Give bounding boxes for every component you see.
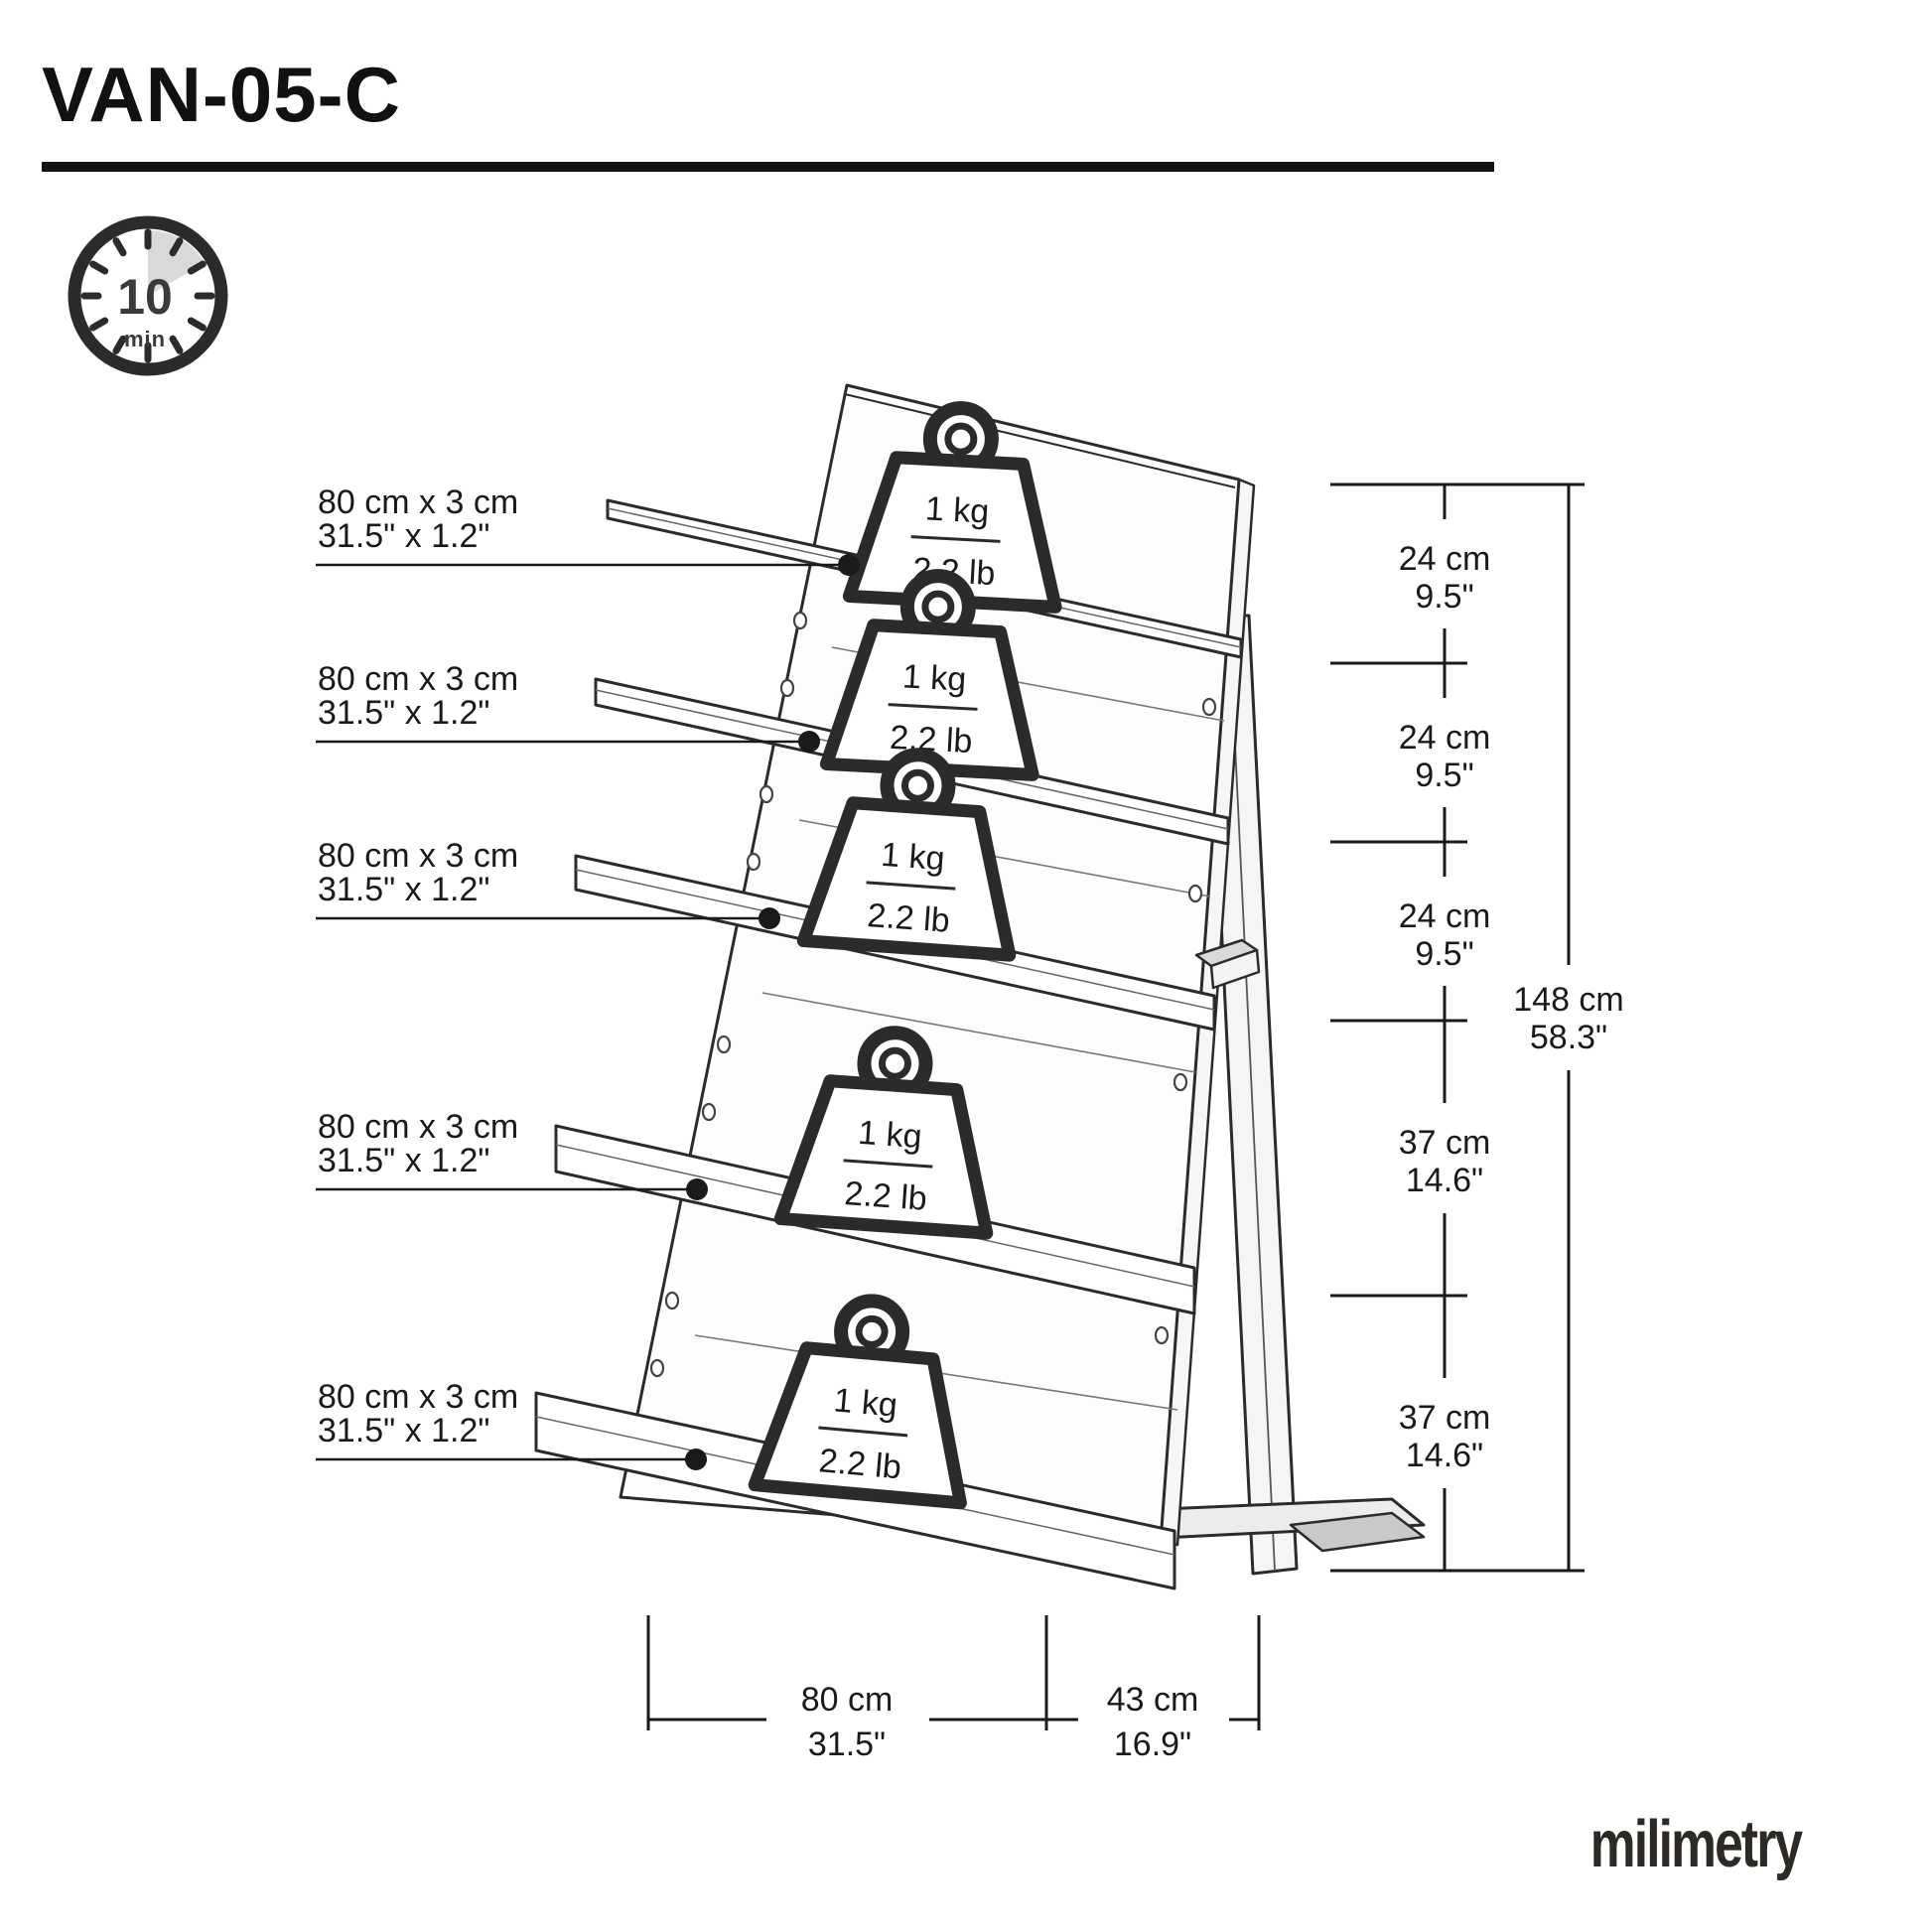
dim-segment-imperial: 9.5" (1415, 757, 1473, 794)
shelf-leader-dot (685, 1449, 707, 1470)
dim-segment-metric: 24 cm (1399, 540, 1491, 578)
weight-kg-label: 1 kg (901, 657, 967, 698)
shelf-size-label-imperial: 31.5" x 1.2" (318, 1412, 489, 1449)
shelf-size-label-metric: 80 cm x 3 cm (318, 837, 518, 875)
shelf-size-label-metric: 80 cm x 3 cm (318, 1108, 518, 1146)
dim-segment-metric: 37 cm (1399, 1399, 1491, 1437)
dim-width-metric: 80 cm (801, 1681, 894, 1719)
dim-segment-metric: 24 cm (1399, 897, 1491, 935)
shelf-size-label-imperial: 31.5" x 1.2" (318, 517, 489, 555)
time-unit: min (124, 327, 166, 351)
product-dimension-diagram: VAN-05-C 10 min (0, 0, 1932, 1932)
shelf-leader-dot (686, 1178, 708, 1200)
weight-lb-label: 2.2 lb (866, 897, 951, 940)
dim-depth-imperial: 16.9" (1114, 1725, 1191, 1763)
shelf-size-label-metric: 80 cm x 3 cm (318, 1378, 518, 1416)
dim-segment-imperial: 14.6" (1406, 1162, 1483, 1199)
weight-lb-label: 2.2 lb (817, 1442, 902, 1486)
shelf-leader-dot (798, 731, 820, 753)
title-underline (42, 162, 1494, 172)
weight-kg-label: 1 kg (924, 489, 990, 530)
dim-total-metric: 148 cm (1513, 981, 1624, 1019)
shelf-leader-dot (838, 554, 860, 576)
dim-segment-imperial: 14.6" (1406, 1437, 1483, 1474)
page-title: VAN-05-C (42, 51, 401, 138)
shelf-size-label-imperial: 31.5" x 1.2" (318, 1142, 489, 1179)
dim-segment-metric: 37 cm (1399, 1124, 1491, 1162)
dim-width-imperial: 31.5" (808, 1725, 886, 1763)
brand-logo: milimetry (1590, 1806, 1803, 1880)
shelf-leader-dot (759, 907, 780, 929)
dim-depth-metric: 43 cm (1107, 1681, 1199, 1719)
weight-kg-label: 1 kg (880, 836, 946, 878)
dim-segment-imperial: 9.5" (1415, 578, 1473, 616)
weight-lb-label: 2.2 lb (843, 1174, 928, 1218)
shelf-size-label-imperial: 31.5" x 1.2" (318, 694, 489, 732)
shelf-size-label-metric: 80 cm x 3 cm (318, 483, 518, 521)
shelf-size-callout: 80 cm x 3 cm 31.5" x 1.2" (316, 483, 860, 576)
weight-kg-label: 1 kg (832, 1381, 898, 1424)
weight-kg-label: 1 kg (857, 1114, 923, 1156)
assembly-time-clock-icon: 10 min (74, 222, 221, 369)
dim-segment-imperial: 9.5" (1415, 935, 1473, 973)
bottom-dimension-labels: 80 cm 31.5" 43 cm 16.9" (801, 1681, 1199, 1763)
shelf-size-label-metric: 80 cm x 3 cm (318, 660, 518, 698)
time-value: 10 (117, 269, 173, 325)
dim-total-imperial: 58.3" (1530, 1019, 1607, 1056)
height-dimension-labels: 24 cm 9.5" 24 cm 9.5" 24 cm 9.5" 37 cm 1… (1399, 540, 1624, 1474)
dim-segment-metric: 24 cm (1399, 719, 1491, 757)
shelf-size-label-imperial: 31.5" x 1.2" (318, 871, 489, 908)
